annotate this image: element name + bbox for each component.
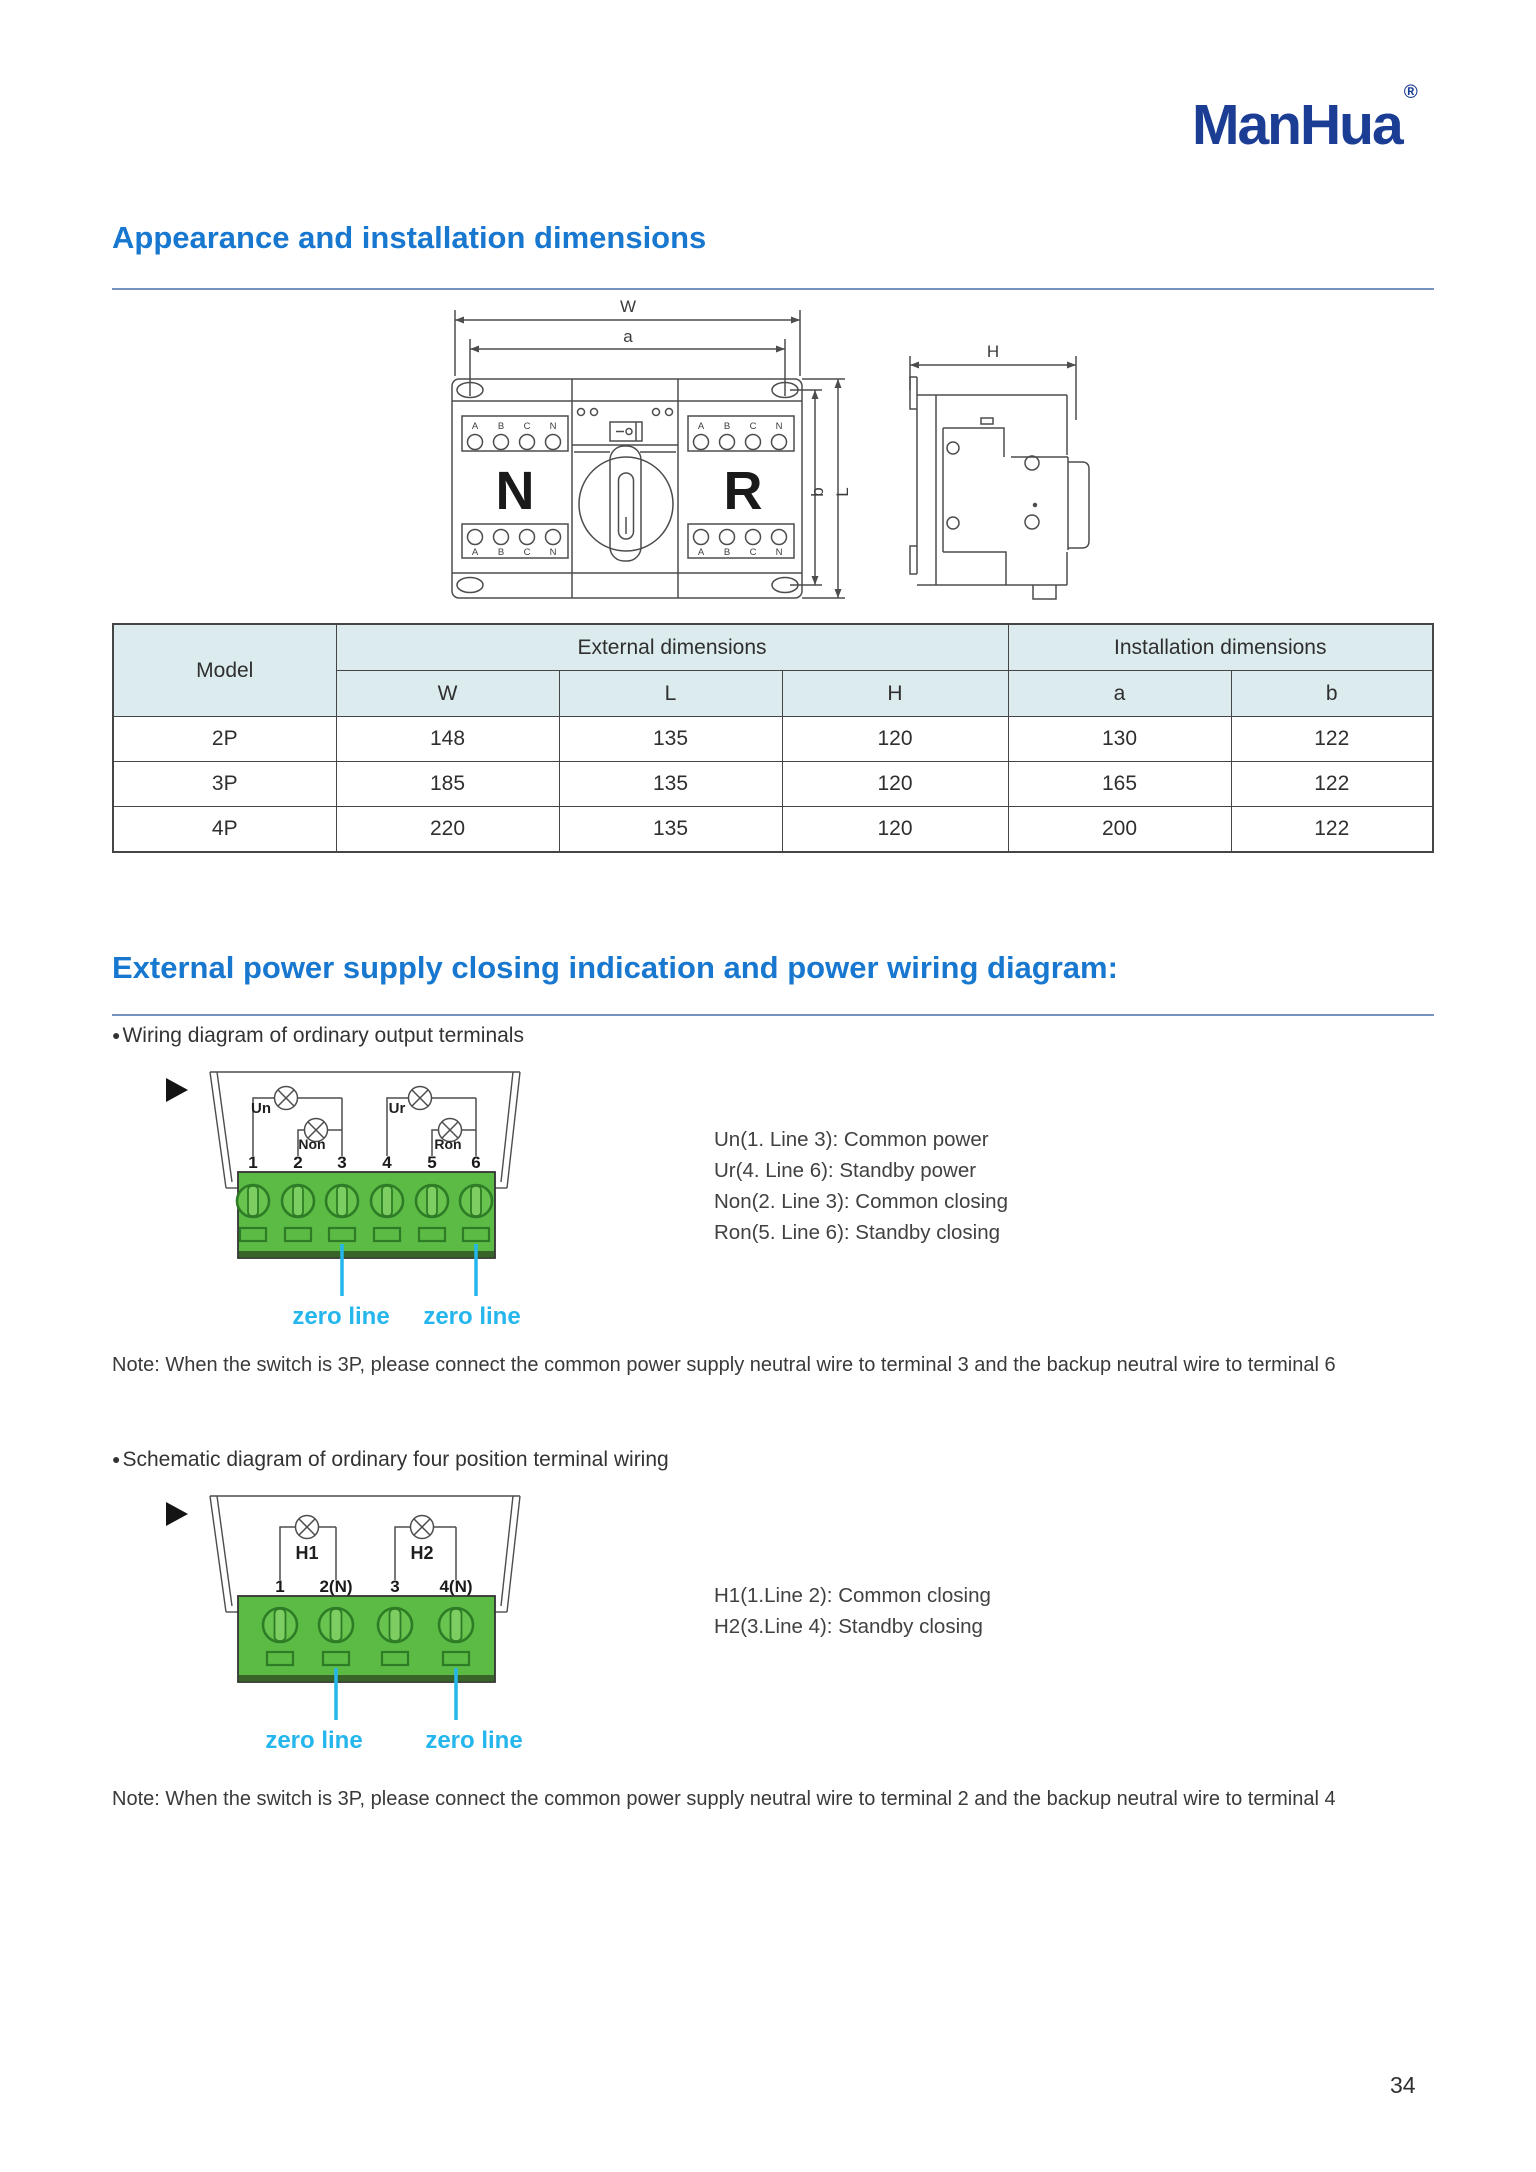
svg-text:B: B bbox=[724, 421, 730, 432]
dim-b-label: b bbox=[808, 487, 827, 496]
svg-text:B: B bbox=[724, 547, 730, 558]
zero-line-label-left: zero line bbox=[292, 1303, 389, 1330]
legend-line: H1(1.Line 2): Common closing bbox=[714, 1580, 991, 1611]
svg-text:A: A bbox=[698, 421, 705, 432]
reserve-supply-label: R bbox=[724, 461, 763, 521]
svg-text:N: N bbox=[550, 547, 557, 558]
svg-text:1: 1 bbox=[275, 1577, 284, 1596]
dim-h-label: H bbox=[987, 342, 999, 361]
legend-line: H2(3.Line 4): Standby closing bbox=[714, 1611, 991, 1642]
lamp-label-ron: Ron bbox=[434, 1136, 461, 1152]
lamp-label-h2: H2 bbox=[410, 1543, 433, 1563]
bullet-dot: ● bbox=[112, 1451, 120, 1467]
wiring-diagram-output-terminals: Un Non Ur Ron 1 2 3 4 5 6 bbox=[160, 1068, 537, 1335]
legend-line: Un(1. Line 3): Common power bbox=[714, 1124, 1008, 1155]
terminal-numbers: 1 2 3 4 5 6 bbox=[248, 1153, 480, 1172]
svg-text:4: 4 bbox=[382, 1153, 392, 1172]
table-row-2p: 2P 148 135 120 130 122 bbox=[113, 717, 1433, 762]
svg-text:4(N): 4(N) bbox=[439, 1577, 472, 1596]
legend-line: Ur(4. Line 6): Standby power bbox=[714, 1155, 1008, 1186]
svg-text:N: N bbox=[550, 421, 557, 432]
svg-text:2(N): 2(N) bbox=[319, 1577, 352, 1596]
dim-l-label: L bbox=[833, 487, 852, 496]
dim-a-label: a bbox=[623, 327, 633, 346]
svg-text:C: C bbox=[524, 547, 531, 558]
svg-text:A: A bbox=[472, 421, 479, 432]
svg-text:A: A bbox=[698, 547, 705, 558]
lamp-label-ur: Ur bbox=[389, 1100, 406, 1117]
dimensions-table: Model External dimensions Installation d… bbox=[112, 623, 1434, 853]
table-header-external: External dimensions bbox=[336, 624, 1008, 671]
svg-text:C: C bbox=[750, 547, 757, 558]
terminal-housing bbox=[210, 1496, 520, 1612]
dim-w-label: W bbox=[620, 297, 636, 316]
svg-text:N: N bbox=[776, 421, 783, 432]
registered-mark: ® bbox=[1404, 82, 1418, 103]
legend-line: Ron(5. Line 6): Standby closing bbox=[714, 1217, 1008, 1248]
svg-text:C: C bbox=[750, 421, 757, 432]
svg-text:B: B bbox=[498, 421, 504, 432]
brand-name: ManHua bbox=[1192, 93, 1402, 157]
bullet-dot: ● bbox=[112, 1027, 120, 1043]
terminal-legend-1: Un(1. Line 3): Common power Ur(4. Line 6… bbox=[714, 1124, 1008, 1248]
zero-line-label-right: zero line bbox=[425, 1727, 522, 1754]
terminal-numbers: 1 2(N) 3 4(N) bbox=[275, 1577, 472, 1596]
terminal-legend-2: H1(1.Line 2): Common closing H2(3.Line 4… bbox=[714, 1580, 991, 1642]
svg-text:B: B bbox=[498, 547, 504, 558]
note-3p-terminals-3-6: Note: When the switch is 3P, please conn… bbox=[112, 1354, 1336, 1377]
pointer-triangle-icon bbox=[166, 1502, 188, 1526]
lamp-label-h1: H1 bbox=[295, 1543, 318, 1563]
zero-line-label-left: zero line bbox=[265, 1727, 362, 1754]
svg-text:1: 1 bbox=[248, 1153, 257, 1172]
datasheet-page: ManHua® Appearance and installation dime… bbox=[0, 0, 1536, 2172]
svg-text:2: 2 bbox=[293, 1153, 302, 1172]
svg-text:5: 5 bbox=[427, 1153, 436, 1172]
front-view-drawing: W a b L N R A B C N A B C N A B C N A B … bbox=[440, 296, 860, 606]
svg-text:A: A bbox=[472, 547, 479, 558]
table-header-installation: Installation dimensions bbox=[1008, 624, 1433, 671]
green-terminal-block bbox=[237, 1172, 495, 1258]
section-heading-dimensions: Appearance and installation dimensions bbox=[112, 220, 706, 256]
table-header-model: Model bbox=[113, 624, 336, 717]
page-number: 34 bbox=[1390, 2072, 1416, 2099]
brand-logo: ManHua® bbox=[1192, 92, 1416, 158]
note-3p-terminals-2-4: Note: When the switch is 3P, please conn… bbox=[112, 1788, 1336, 1811]
heading-rule-2 bbox=[112, 1014, 1434, 1016]
lamp-label-un: Un bbox=[251, 1100, 271, 1117]
svg-text:3: 3 bbox=[390, 1577, 399, 1596]
normal-supply-label: N bbox=[496, 461, 535, 521]
legend-line: Non(2. Line 3): Common closing bbox=[714, 1186, 1008, 1217]
table-row-4p: 4P 220 135 120 200 122 bbox=[113, 807, 1433, 853]
bullet-four-position: ●Schematic diagram of ordinary four posi… bbox=[112, 1448, 669, 1472]
svg-text:C: C bbox=[524, 421, 531, 432]
svg-text:N: N bbox=[776, 547, 783, 558]
zero-line-label-right: zero line bbox=[423, 1303, 520, 1330]
side-view-drawing: H bbox=[886, 320, 1116, 610]
lamp-label-non: Non bbox=[298, 1136, 325, 1152]
pointer-triangle-icon bbox=[166, 1078, 188, 1102]
svg-text:6: 6 bbox=[471, 1153, 480, 1172]
heading-rule bbox=[112, 288, 1434, 290]
section-heading-wiring: External power supply closing indication… bbox=[112, 950, 1118, 986]
wiring-diagram-four-position: H1 H2 1 2(N) 3 4(N) bbox=[160, 1492, 537, 1759]
table-row-3p: 3P 185 135 120 165 122 bbox=[113, 762, 1433, 807]
bullet-output-terminals: ●Wiring diagram of ordinary output termi… bbox=[112, 1024, 524, 1048]
svg-text:3: 3 bbox=[337, 1153, 346, 1172]
